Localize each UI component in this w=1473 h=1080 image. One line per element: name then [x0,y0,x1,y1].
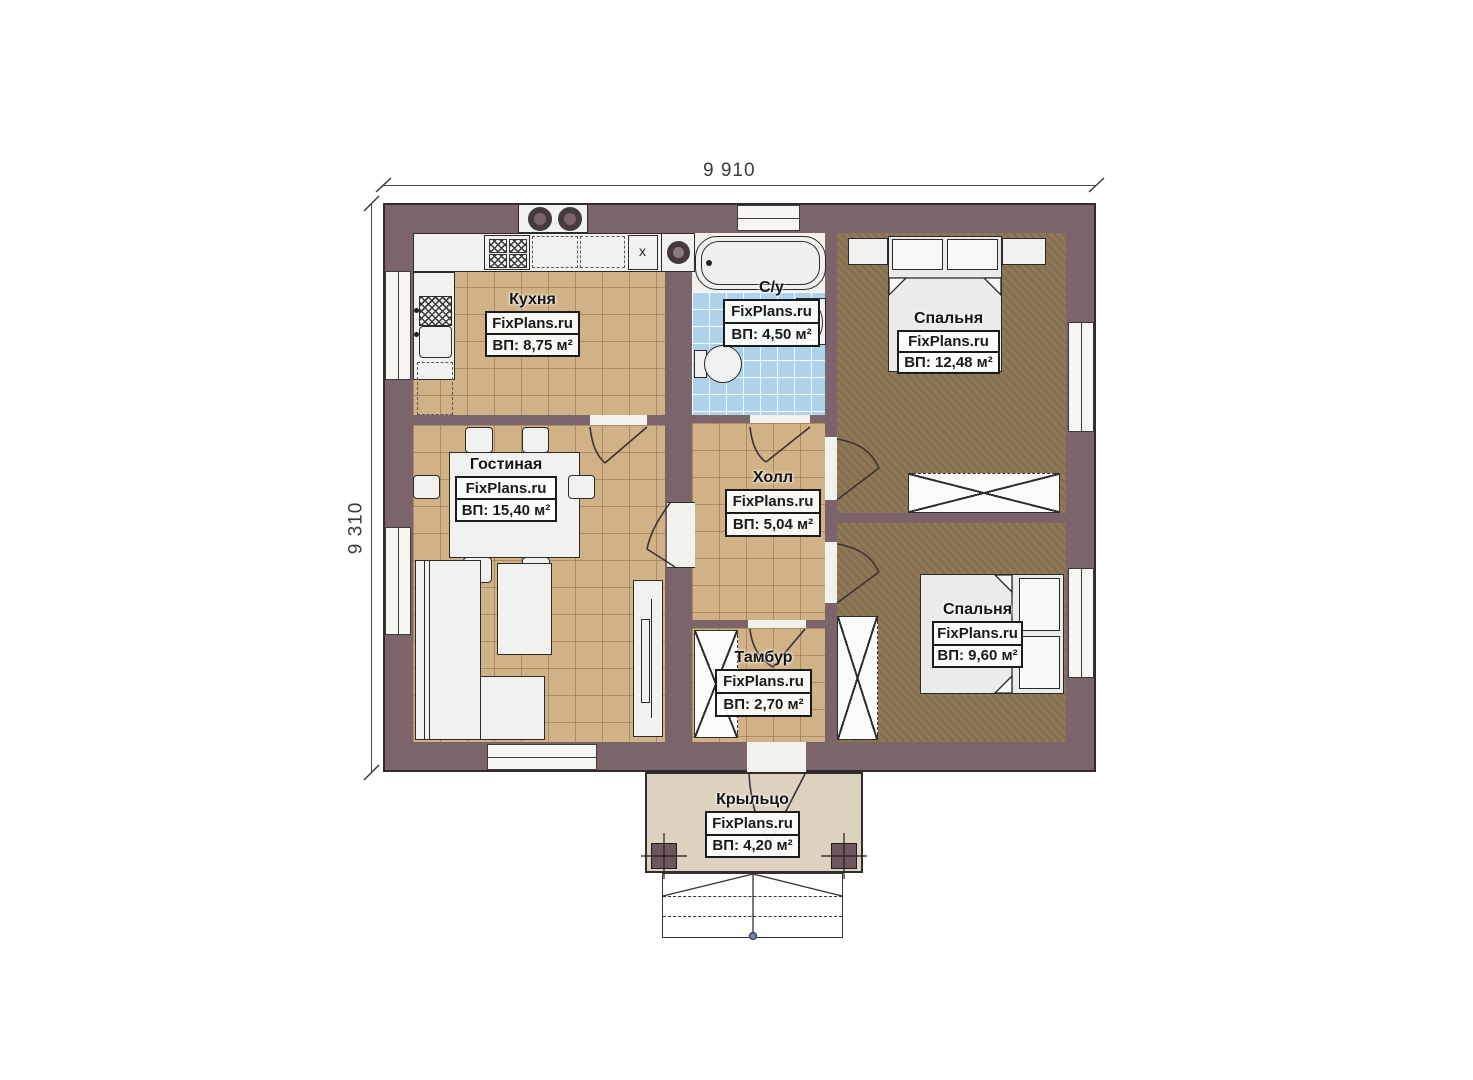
room-name: Тамбур [715,649,812,667]
door-opening-kitchen-living [590,415,647,425]
chair [413,475,440,499]
porch-post [831,843,857,869]
room-name: С/у [723,279,820,297]
room-label-living: Гостиная FixPlans.ru ВП: 15,40 м² [455,456,557,522]
door-opening-hall-tambur [748,620,806,628]
watermark-text: FixPlans.ru [487,313,578,335]
watermark-text: FixPlans.ru [727,491,819,514]
room-area: ВП: 12,48 м² [899,353,998,372]
door-opening-tambur-porch [747,742,806,772]
room-area: ВП: 4,20 м² [707,836,798,857]
room-area: ВП: 5,04 м² [727,514,819,535]
upper-cabinet-dashed [532,236,578,268]
kitchen-appliance-mark: x [639,243,646,259]
stove-burner [489,254,507,268]
pillow [1019,636,1060,689]
tv-cabinet [633,580,663,737]
coffee-table [497,563,552,655]
vent-flue-icon [528,207,552,231]
porch-post [651,843,677,869]
dish-drainer [419,296,452,326]
window-living-bottom [487,744,597,770]
stair-step-line [663,916,842,917]
door-opening-hall-bedroom2 [825,542,837,603]
pillow [892,239,943,270]
room-info-box: FixPlans.ru ВП: 4,50 м² [723,299,820,347]
floor-plan-canvas: 9 910 9 310 x [0,0,1473,1080]
nightstand [848,238,888,265]
room-label-kitchen: Кухня FixPlans.ru ВП: 8,75 м² [485,291,580,357]
watermark-text: FixPlans.ru [707,813,798,836]
faucet-dot [414,332,419,337]
stove-burner [509,239,527,253]
toilet-bowl [704,345,742,383]
wardrobe-bedroom1 [908,473,1060,513]
chair [522,427,549,453]
room-name: Гостиная [455,456,557,474]
room-area: ВП: 9,60 м² [934,646,1021,667]
room-label-bathroom: С/у FixPlans.ru ВП: 4,50 м² [723,279,820,347]
door-leaf-living-hall [667,502,695,568]
room-info-box: FixPlans.ru ВП: 4,20 м² [705,811,800,858]
room-name: Спальня [932,601,1023,619]
vent-flue-icon [558,207,582,231]
room-label-porch: Крыльцо FixPlans.ru ВП: 4,20 м² [705,791,800,858]
nightstand [1002,238,1046,265]
dimension-line-top [383,185,1096,186]
watermark-text: FixPlans.ru [899,332,998,353]
room-label-bedroom1: Спальня FixPlans.ru ВП: 12,48 м² [897,310,1000,374]
window-bedroom2 [1068,568,1094,678]
room-name: Крыльцо [705,791,800,809]
room-area: ВП: 15,40 м² [457,500,555,520]
window-kitchen [385,271,411,380]
room-name: Холл [725,469,821,487]
room-label-bedroom2: Спальня FixPlans.ru ВП: 9,60 м² [932,601,1023,668]
sofa-backrest-line [429,561,430,739]
porch-stairs [662,873,843,938]
room-area: ВП: 8,75 м² [487,335,578,355]
dimension-line-left [371,203,372,772]
bathtub-tap [706,260,712,266]
pillow [947,239,998,270]
room-area: ВП: 4,50 м² [725,324,818,345]
dimension-left-label: 9 310 [345,502,367,555]
room-label-hall: Холл FixPlans.ru ВП: 5,04 м² [725,469,821,537]
sofa-corner-horizontal [480,676,545,740]
stove-burner [509,254,527,268]
pillow [1019,578,1060,631]
chair [568,475,595,499]
watermark-text: FixPlans.ru [725,301,818,324]
door-opening-hall-bathroom [750,415,810,423]
sofa-corner-vertical [415,560,481,740]
window-living-left [385,527,411,635]
lower-cabinet-dashed [417,362,453,415]
room-info-box: FixPlans.ru ВП: 15,40 м² [455,476,557,522]
room-info-box: FixPlans.ru ВП: 5,04 м² [725,489,821,537]
room-info-box: FixPlans.ru ВП: 2,70 м² [715,669,812,717]
door-opening-hall-bedroom1 [825,437,837,500]
watermark-text: FixPlans.ru [457,478,555,500]
sofa-backrest-line [424,561,425,739]
upper-cabinet-dashed [580,236,625,268]
faucet-dot [414,308,419,313]
stove-burner [489,239,507,253]
room-area: ВП: 2,70 м² [717,694,810,715]
tv-screen [641,619,650,703]
boiler-icon [667,241,690,264]
stair-step-line [663,896,842,897]
window-bedroom1 [1068,322,1094,432]
chair [465,427,493,453]
dimension-top-label: 9 910 [703,160,756,182]
wardrobe-bedroom2 [837,616,878,740]
room-name: Кухня [485,291,580,309]
room-info-box: FixPlans.ru ВП: 8,75 м² [485,311,580,357]
watermark-text: FixPlans.ru [717,671,810,694]
kitchen-sink [419,326,452,358]
room-name: Спальня [897,310,1000,328]
room-info-box: FixPlans.ru ВП: 12,48 м² [897,330,1000,374]
window-bathroom-top [737,205,800,231]
tv-line [651,599,652,718]
room-info-box: FixPlans.ru ВП: 9,60 м² [932,621,1023,668]
stove [484,235,530,270]
watermark-text: FixPlans.ru [934,623,1021,646]
room-label-tambur: Тамбур FixPlans.ru ВП: 2,70 м² [715,649,812,717]
